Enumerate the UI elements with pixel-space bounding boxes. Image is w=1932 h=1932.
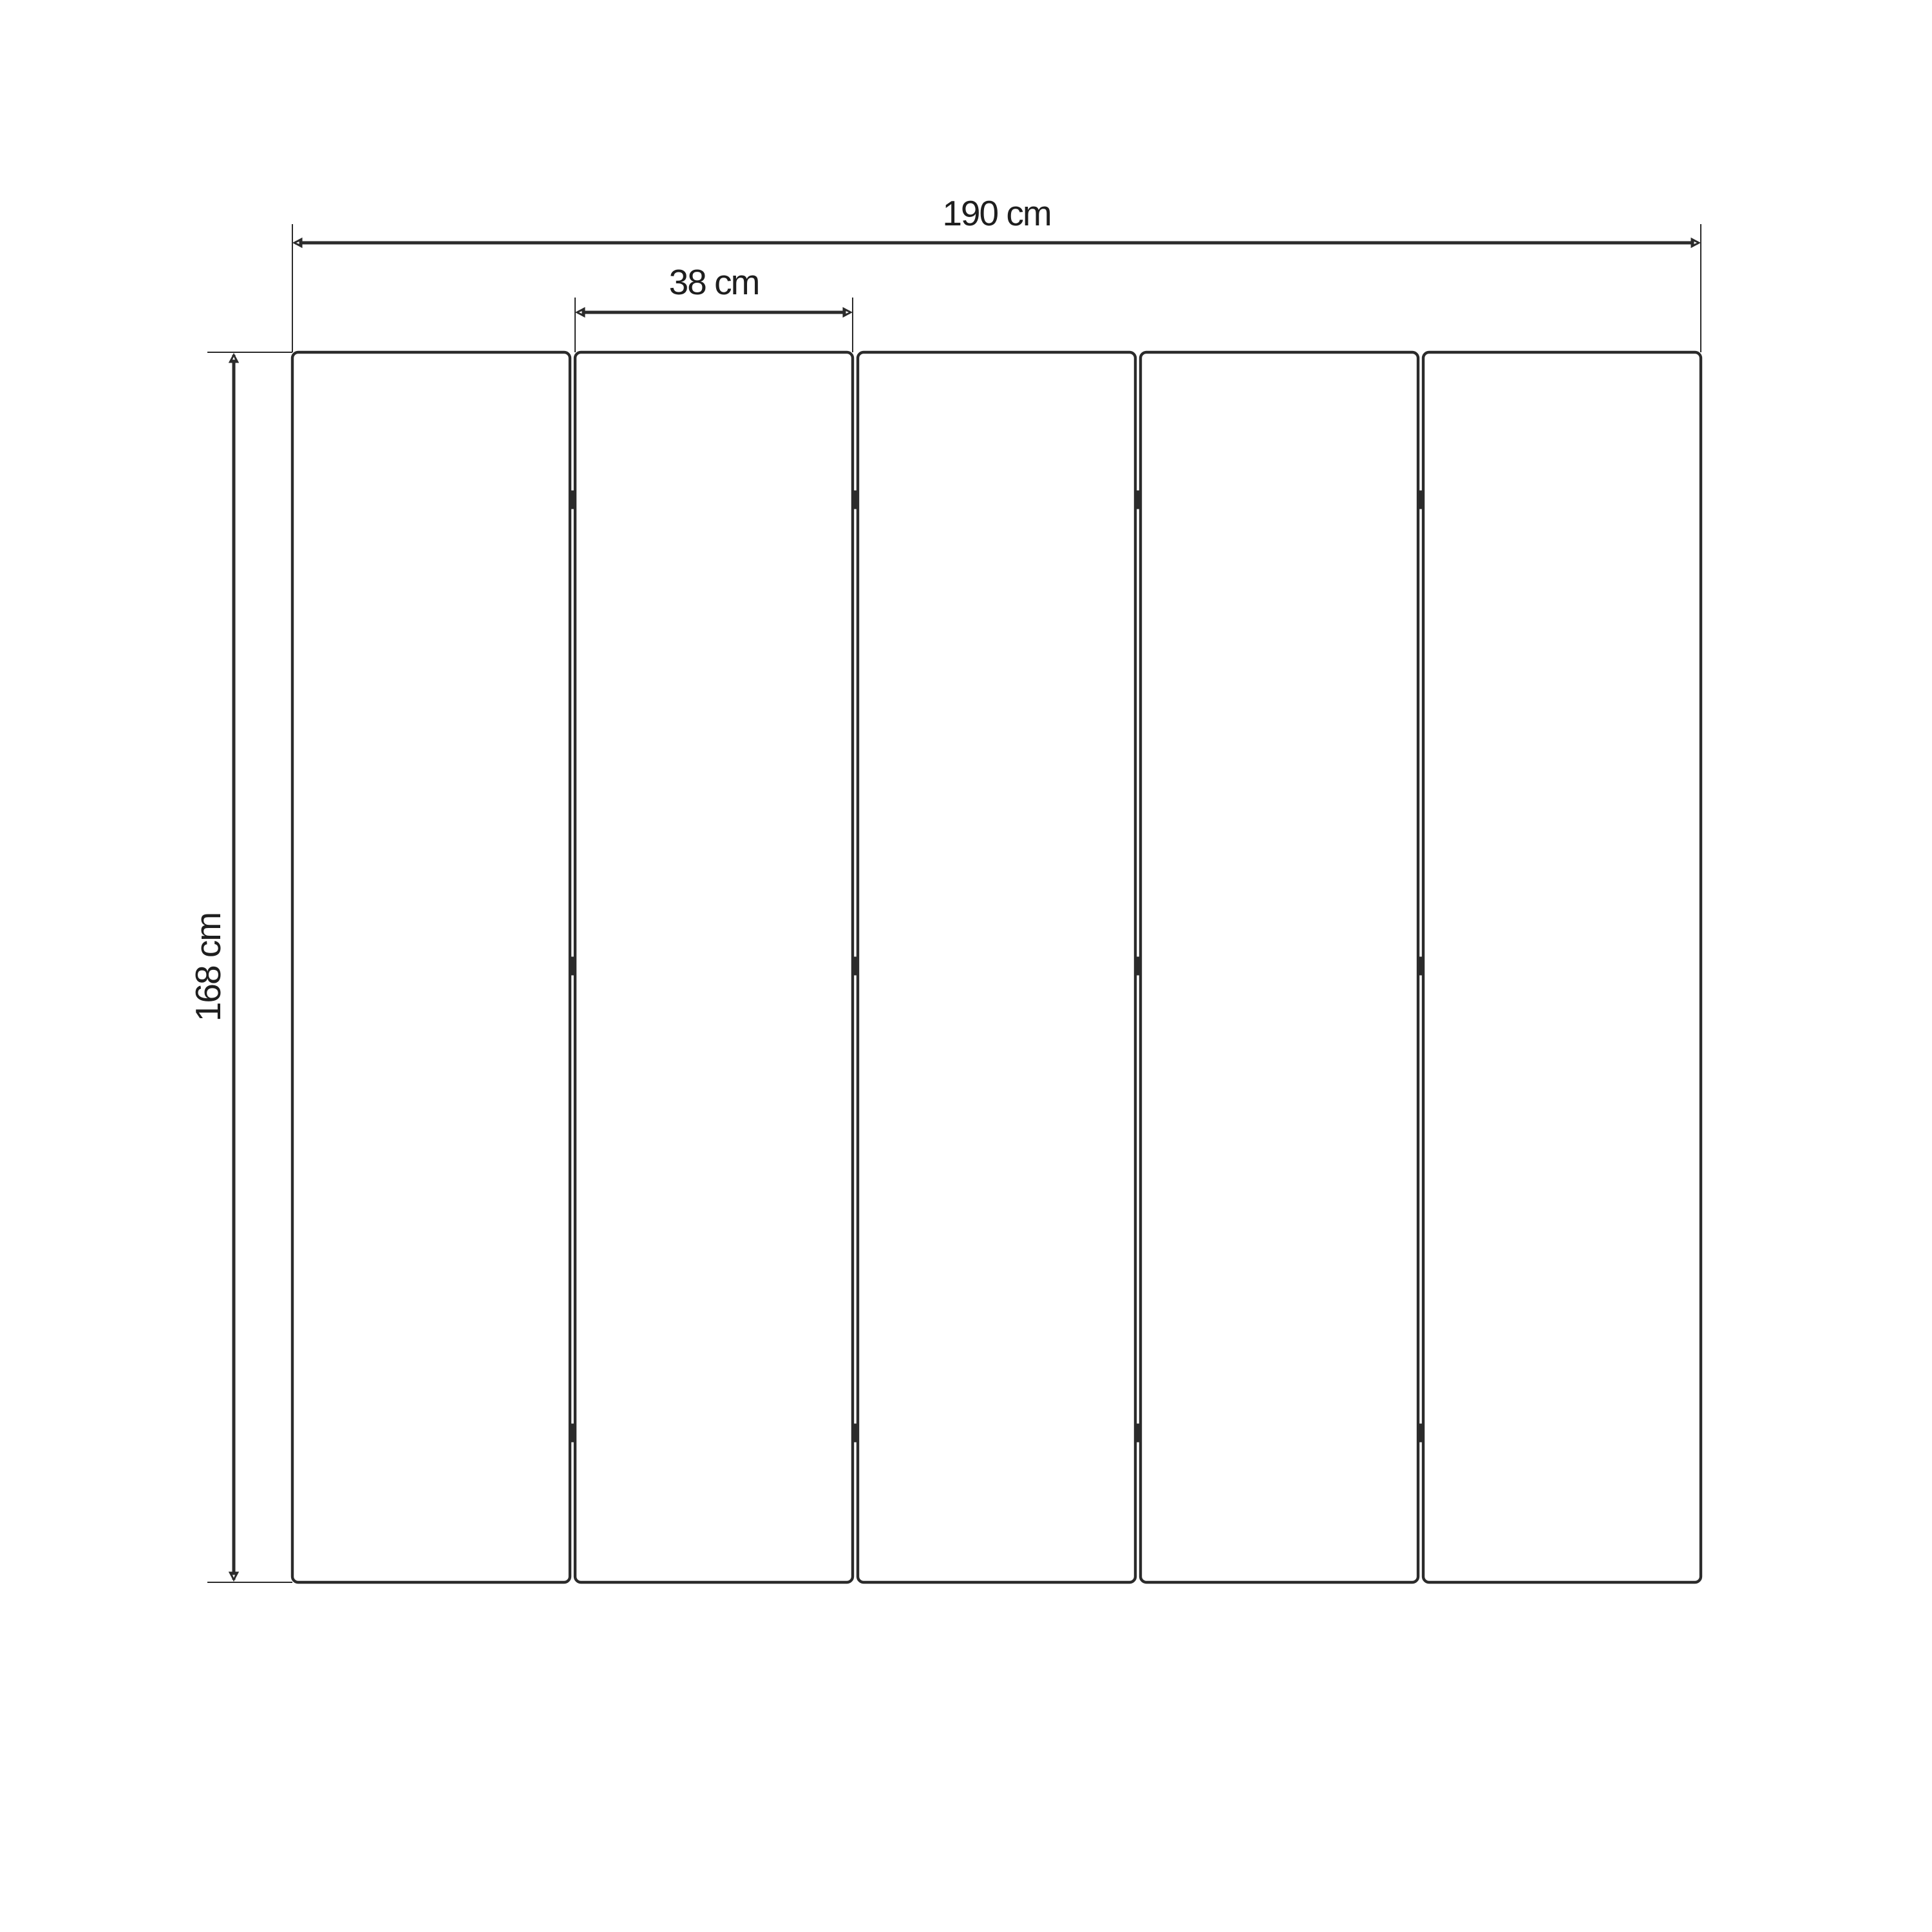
svg-text:168 cm: 168 cm (188, 913, 228, 1021)
svg-text:190 cm: 190 cm (942, 193, 1050, 233)
svg-text:38 cm: 38 cm (669, 262, 759, 302)
